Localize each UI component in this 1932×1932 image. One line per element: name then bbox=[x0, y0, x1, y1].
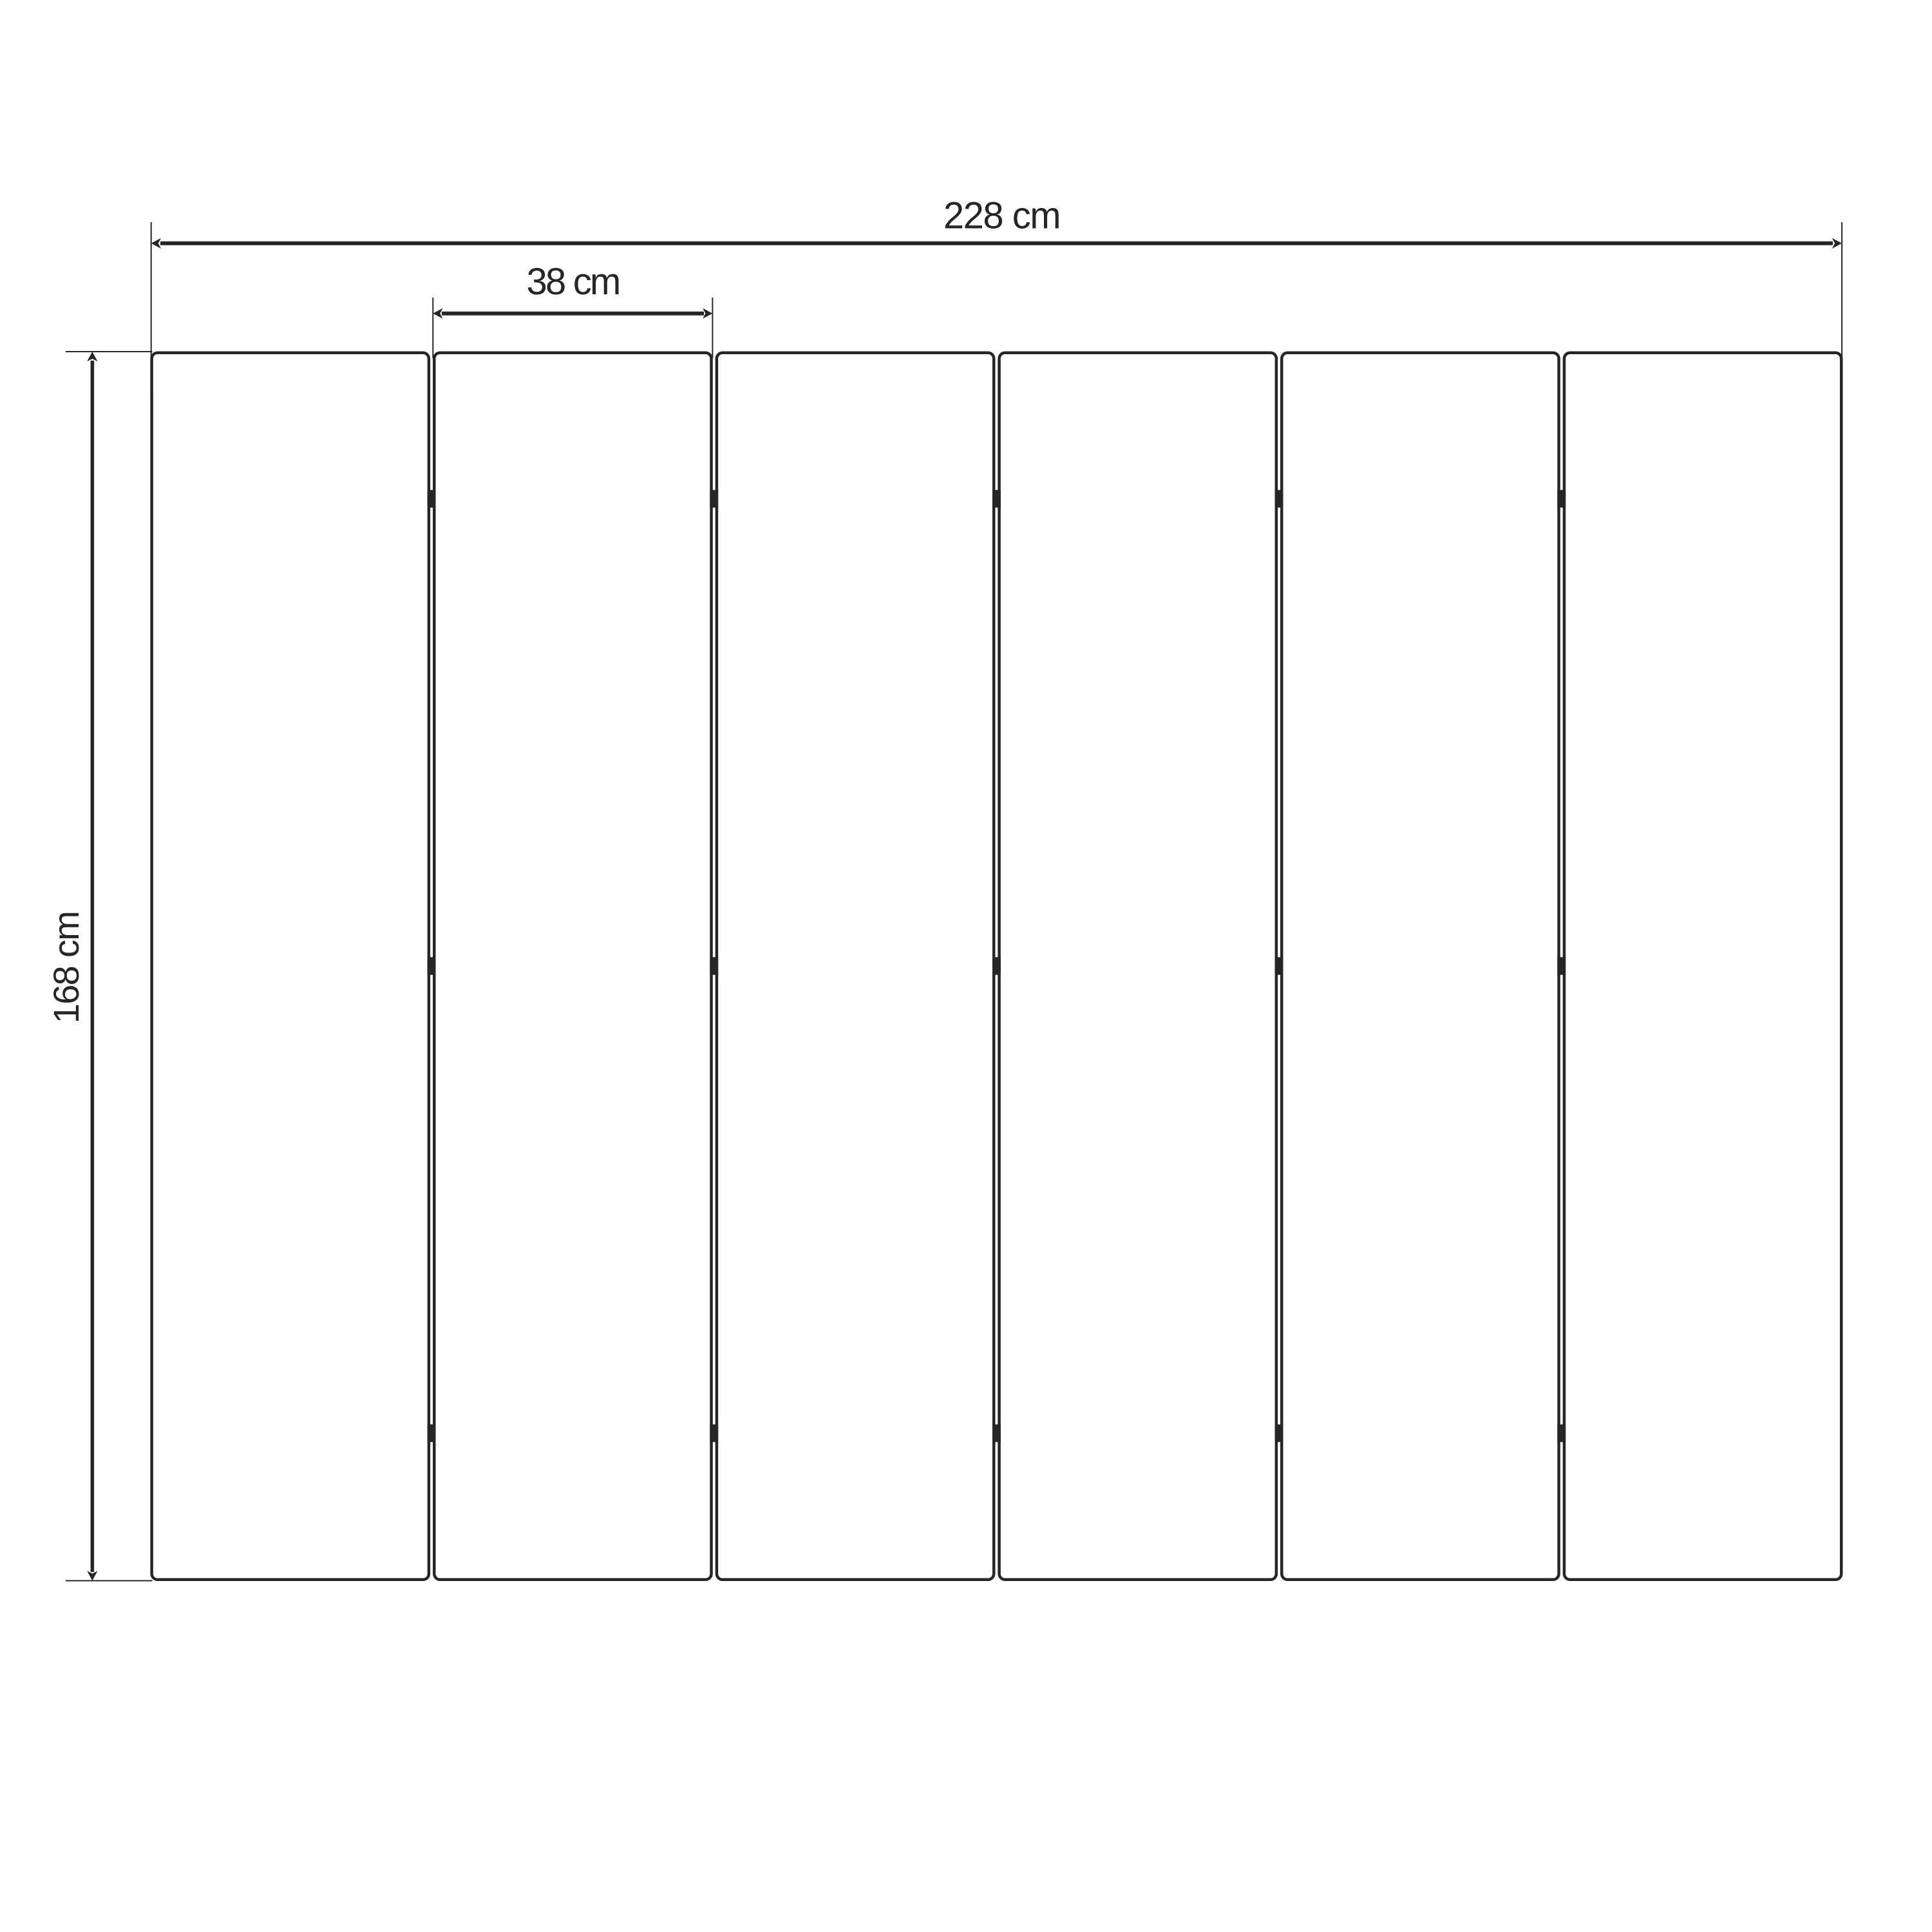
svg-text:168 cm: 168 cm bbox=[46, 912, 86, 1023]
svg-text:228 cm: 228 cm bbox=[943, 195, 1060, 237]
svg-text:38 cm: 38 cm bbox=[527, 261, 620, 303]
